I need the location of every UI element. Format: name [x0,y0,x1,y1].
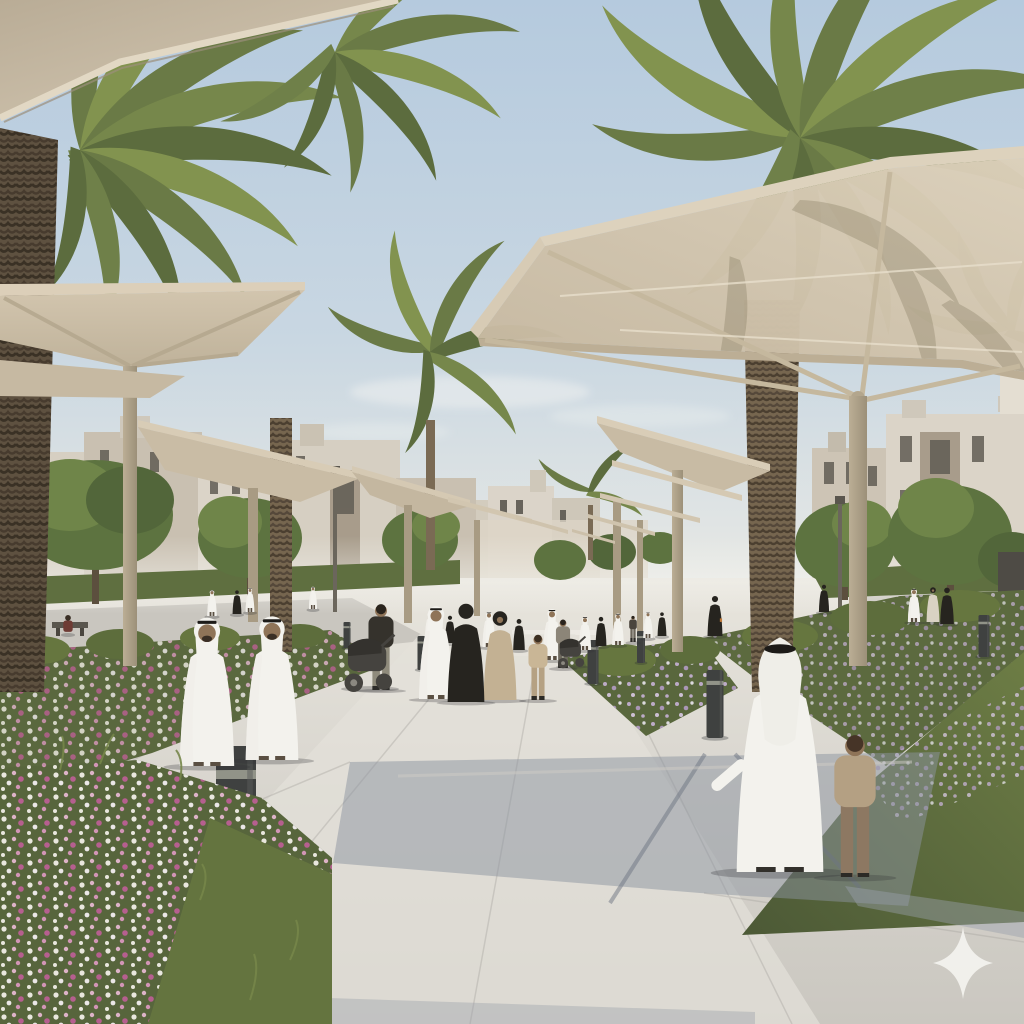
render-image [0,0,1024,1024]
lamp-post [838,500,842,614]
lamp-post [333,470,337,612]
